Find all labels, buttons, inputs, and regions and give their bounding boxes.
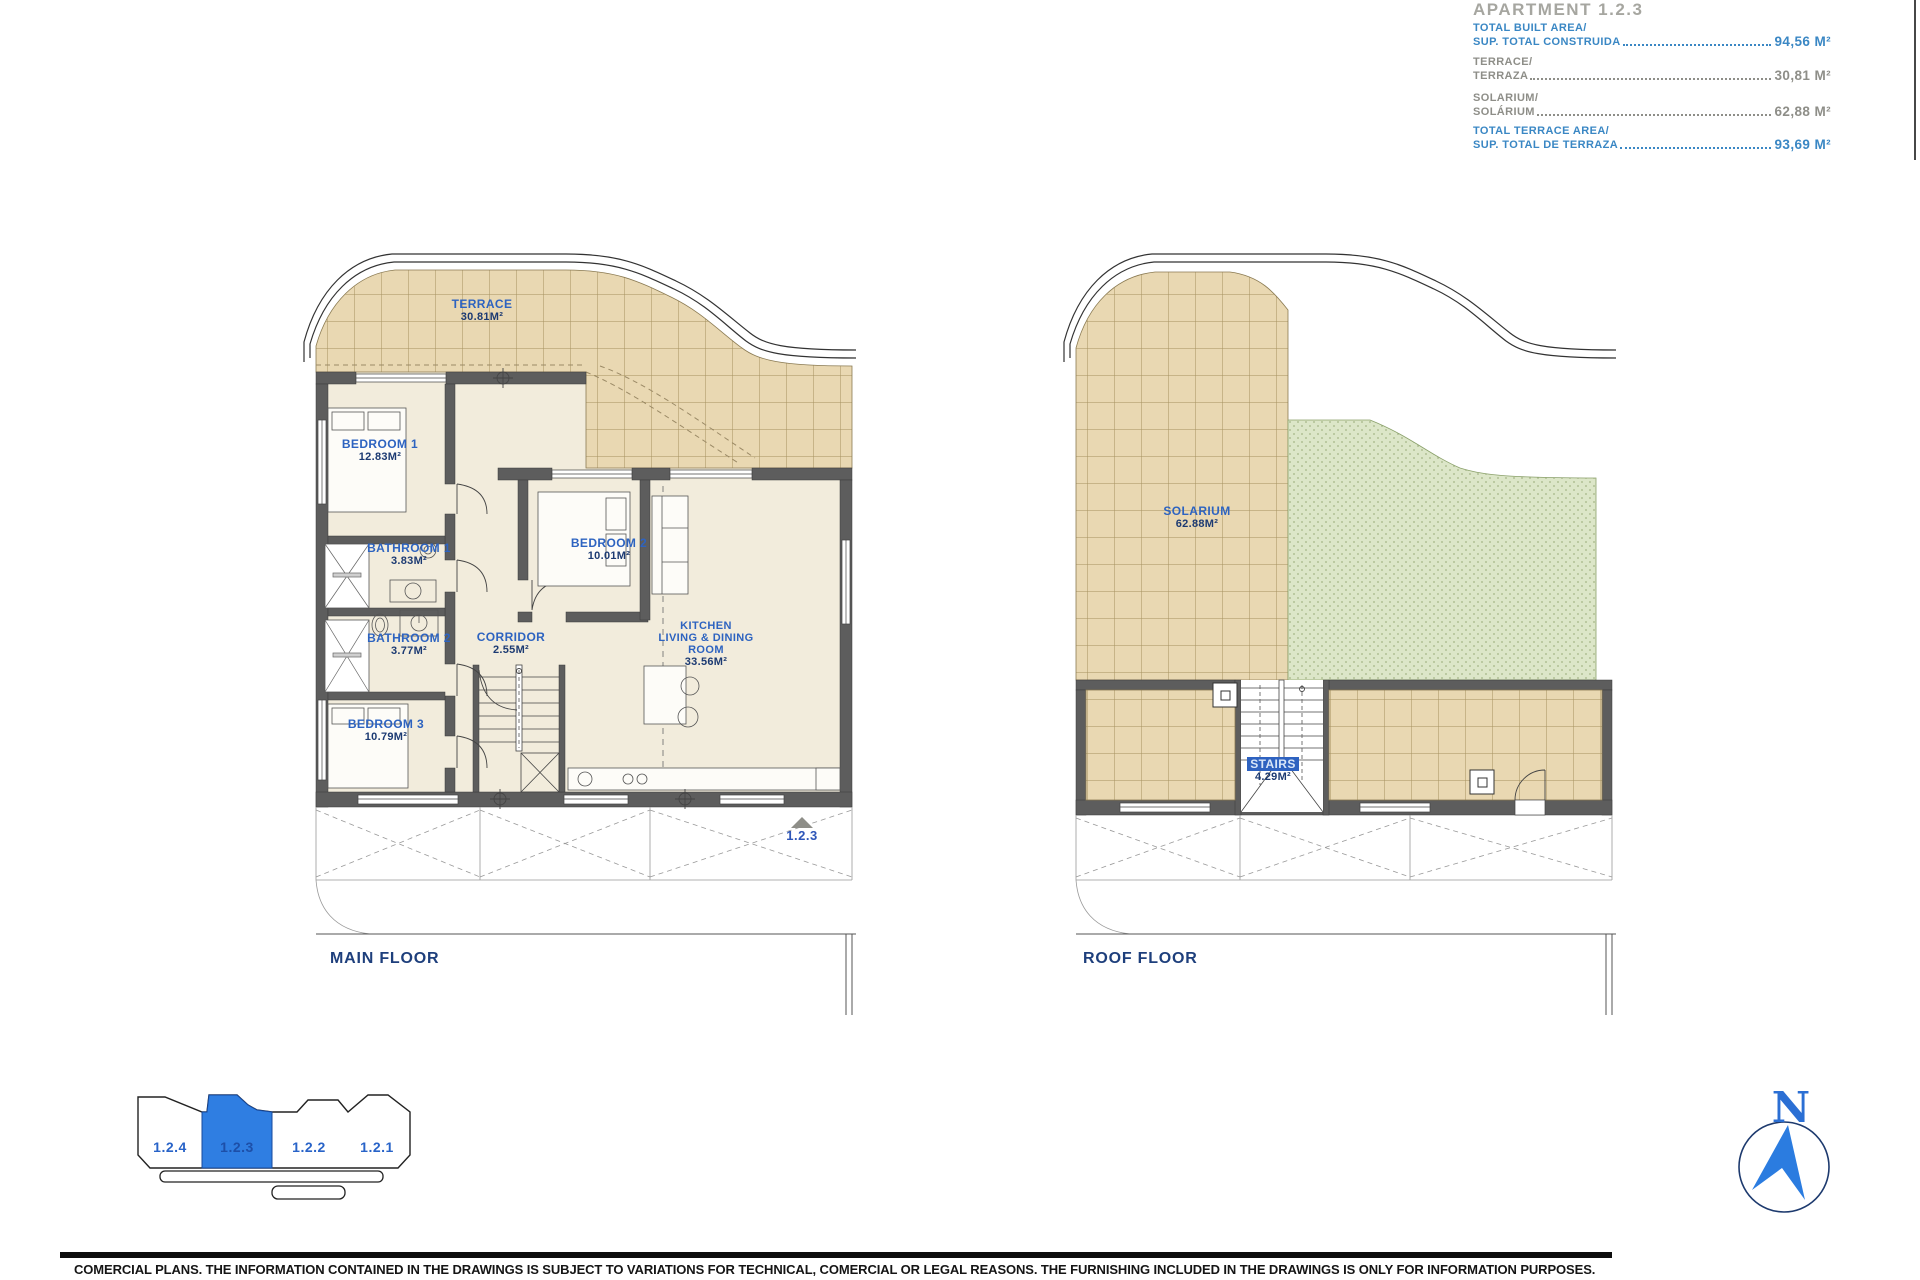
dotted-leader: [1620, 147, 1770, 149]
info-row-total-built-area: TOTAL BUILT AREA/ SUP. TOTAL CONSTRUIDA …: [1473, 22, 1831, 49]
north-arrow-icon: [1752, 1125, 1805, 1200]
main-floor-caption: MAIN FLOOR: [330, 950, 439, 968]
room-label-terrace: TERRACE30.81M²: [412, 298, 552, 324]
main-floor-plan-drawing: [300, 240, 860, 1020]
room-label-stairs: STAIRS4.29M²: [1203, 758, 1343, 784]
dotted-leader: [1623, 44, 1771, 46]
selected-unit-shape: [202, 1095, 272, 1168]
info-value: 94,56 M²: [1775, 35, 1831, 49]
apartment-title: APARTMENT 1.2.3: [1473, 0, 1831, 20]
info-value: 93,69 M²: [1775, 138, 1831, 152]
info-row-terrace: TERRACE/ TERRAZA 30,81 M²: [1473, 56, 1831, 83]
info-value: 30,81 M²: [1775, 69, 1831, 83]
room-label-solarium: SOLARIUM62.88M²: [1127, 505, 1267, 531]
roof-floor-plan-drawing: [1060, 240, 1620, 1020]
room-label-kitchen-living-dining: KITCHEN LIVING & DINING ROOM 33.56M²: [636, 620, 776, 668]
dotted-leader: [1530, 78, 1770, 80]
disclaimer-text: COMERCIAL PLANS. THE INFORMATION CONTAIN…: [74, 1262, 1674, 1277]
info-row-solarium: SOLARIUM/ SOLÁRIUM 62,88 M²: [1473, 92, 1831, 119]
roof-floor-caption: ROOF FLOOR: [1083, 950, 1198, 968]
key-unit-1-2-4: 1.2.4: [140, 1139, 200, 1155]
sheet-border-rule: [1914, 0, 1916, 160]
room-label-bedroom1: BEDROOM 112.83M²: [310, 438, 450, 464]
room-label-bedroom3: BEDROOM 310.79M²: [316, 718, 456, 744]
apartment-info-panel: APARTMENT 1.2.3 TOTAL BUILT AREA/ SUP. T…: [1473, 0, 1831, 20]
info-value: 62,88 M²: [1775, 105, 1831, 119]
key-unit-1-2-2: 1.2.2: [279, 1139, 339, 1155]
room-label-corridor: CORRIDOR2.55M²: [441, 631, 581, 657]
dotted-leader: [1537, 114, 1771, 116]
footer-rule: [60, 1252, 1612, 1258]
north-letter: N: [1772, 1083, 1810, 1132]
room-label-bathroom1: BATHROOM 13.83M²: [339, 542, 479, 568]
key-unit-1-2-1: 1.2.1: [347, 1139, 407, 1155]
entrance-arrow-icon: [791, 817, 813, 828]
room-label-bedroom2: BEDROOM 210.01M²: [539, 537, 679, 563]
north-compass: N: [1730, 1082, 1870, 1232]
entrance-marker: 1.2.3: [762, 817, 842, 843]
info-row-total-terrace-area: TOTAL TERRACE AREA/ SUP. TOTAL DE TERRAZ…: [1473, 125, 1831, 152]
key-unit-1-2-3: 1.2.3: [207, 1139, 267, 1155]
entrance-unit-number: 1.2.3: [762, 828, 842, 843]
floor-plan-sheet: APARTMENT 1.2.3 TOTAL BUILT AREA/ SUP. T…: [0, 0, 1920, 1280]
